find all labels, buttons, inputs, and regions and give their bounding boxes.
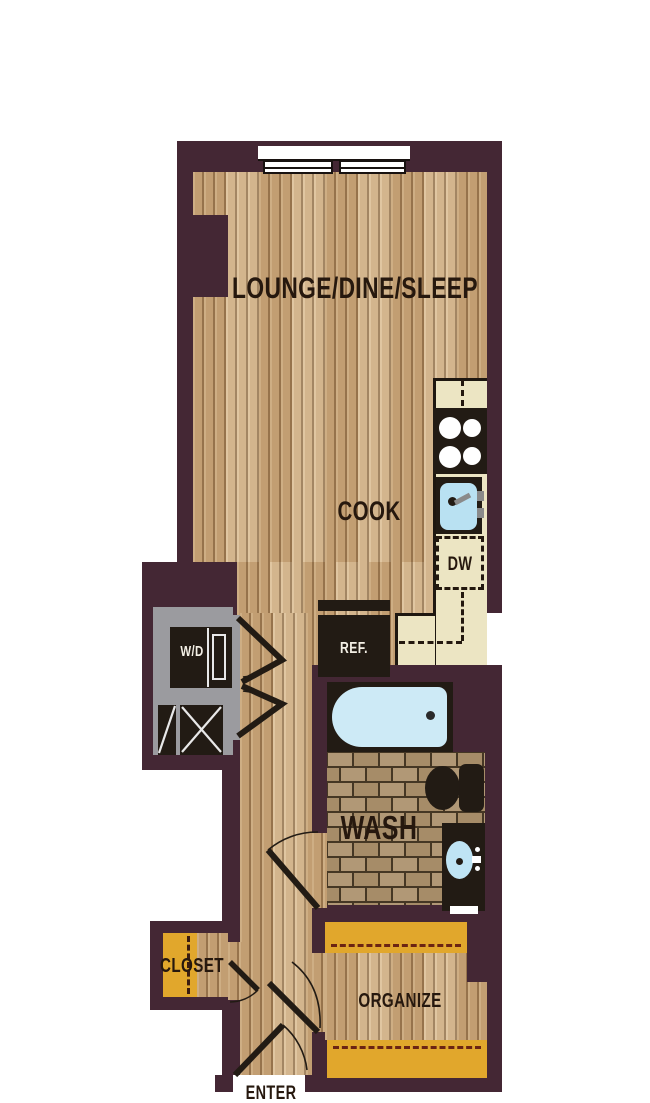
room-label-organize: ORGANIZE xyxy=(360,989,439,1013)
door-arc xyxy=(230,990,258,1002)
mechanical-diagonal xyxy=(159,706,175,753)
room-label-wash: WASH xyxy=(346,812,411,844)
bifold-door-icon xyxy=(238,618,282,682)
door-arc xyxy=(283,1025,307,1070)
label-enter: ENTER xyxy=(246,1085,296,1103)
label-washer-dryer: W/D xyxy=(175,638,208,664)
floor-plan: LOUNGE/DINE/SLEEP COOK DW REF. W/D WASH … xyxy=(0,0,650,1103)
label-refrigerator: REF. xyxy=(327,636,382,662)
door-swing-icon xyxy=(230,962,258,990)
door-arc xyxy=(268,832,318,850)
room-label-cook: COOK xyxy=(323,496,414,526)
room-label-lounge: LOUNGE/DINE/SLEEP xyxy=(245,272,465,306)
label-dishwasher: DW xyxy=(439,553,480,577)
door-linework xyxy=(0,0,650,1103)
door-swing-icon xyxy=(269,983,318,1032)
door-swing-icon xyxy=(235,1025,283,1075)
room-label-closet: CLOSET xyxy=(168,954,217,978)
faucet-handle xyxy=(455,495,470,503)
door-swing-icon xyxy=(268,850,318,908)
